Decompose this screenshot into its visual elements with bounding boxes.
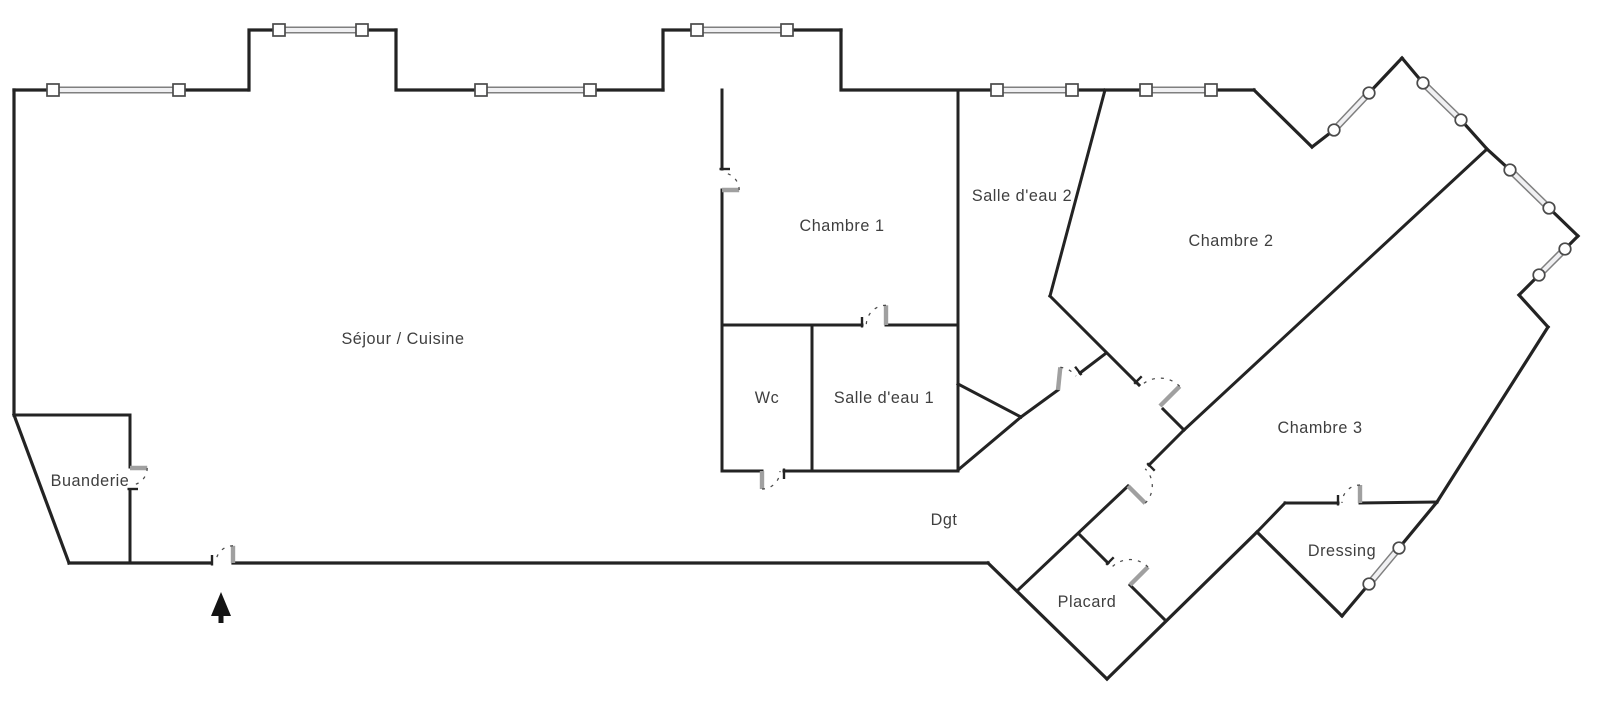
svg-text:Wc: Wc (755, 389, 779, 407)
svg-text:Dressing: Dressing (1308, 542, 1376, 560)
svg-text:Chambre 1: Chambre 1 (799, 217, 884, 235)
svg-text:Dgt: Dgt (931, 511, 958, 529)
svg-text:Chambre 2: Chambre 2 (1188, 232, 1273, 250)
svg-text:Salle d'eau 2: Salle d'eau 2 (972, 187, 1072, 205)
svg-text:Salle d'eau 1: Salle d'eau 1 (834, 389, 934, 407)
svg-text:Séjour / Cuisine: Séjour / Cuisine (341, 330, 464, 348)
svg-text:Buanderie: Buanderie (51, 472, 130, 490)
svg-text:Placard: Placard (1058, 593, 1117, 611)
svg-text:Chambre 3: Chambre 3 (1277, 419, 1362, 437)
